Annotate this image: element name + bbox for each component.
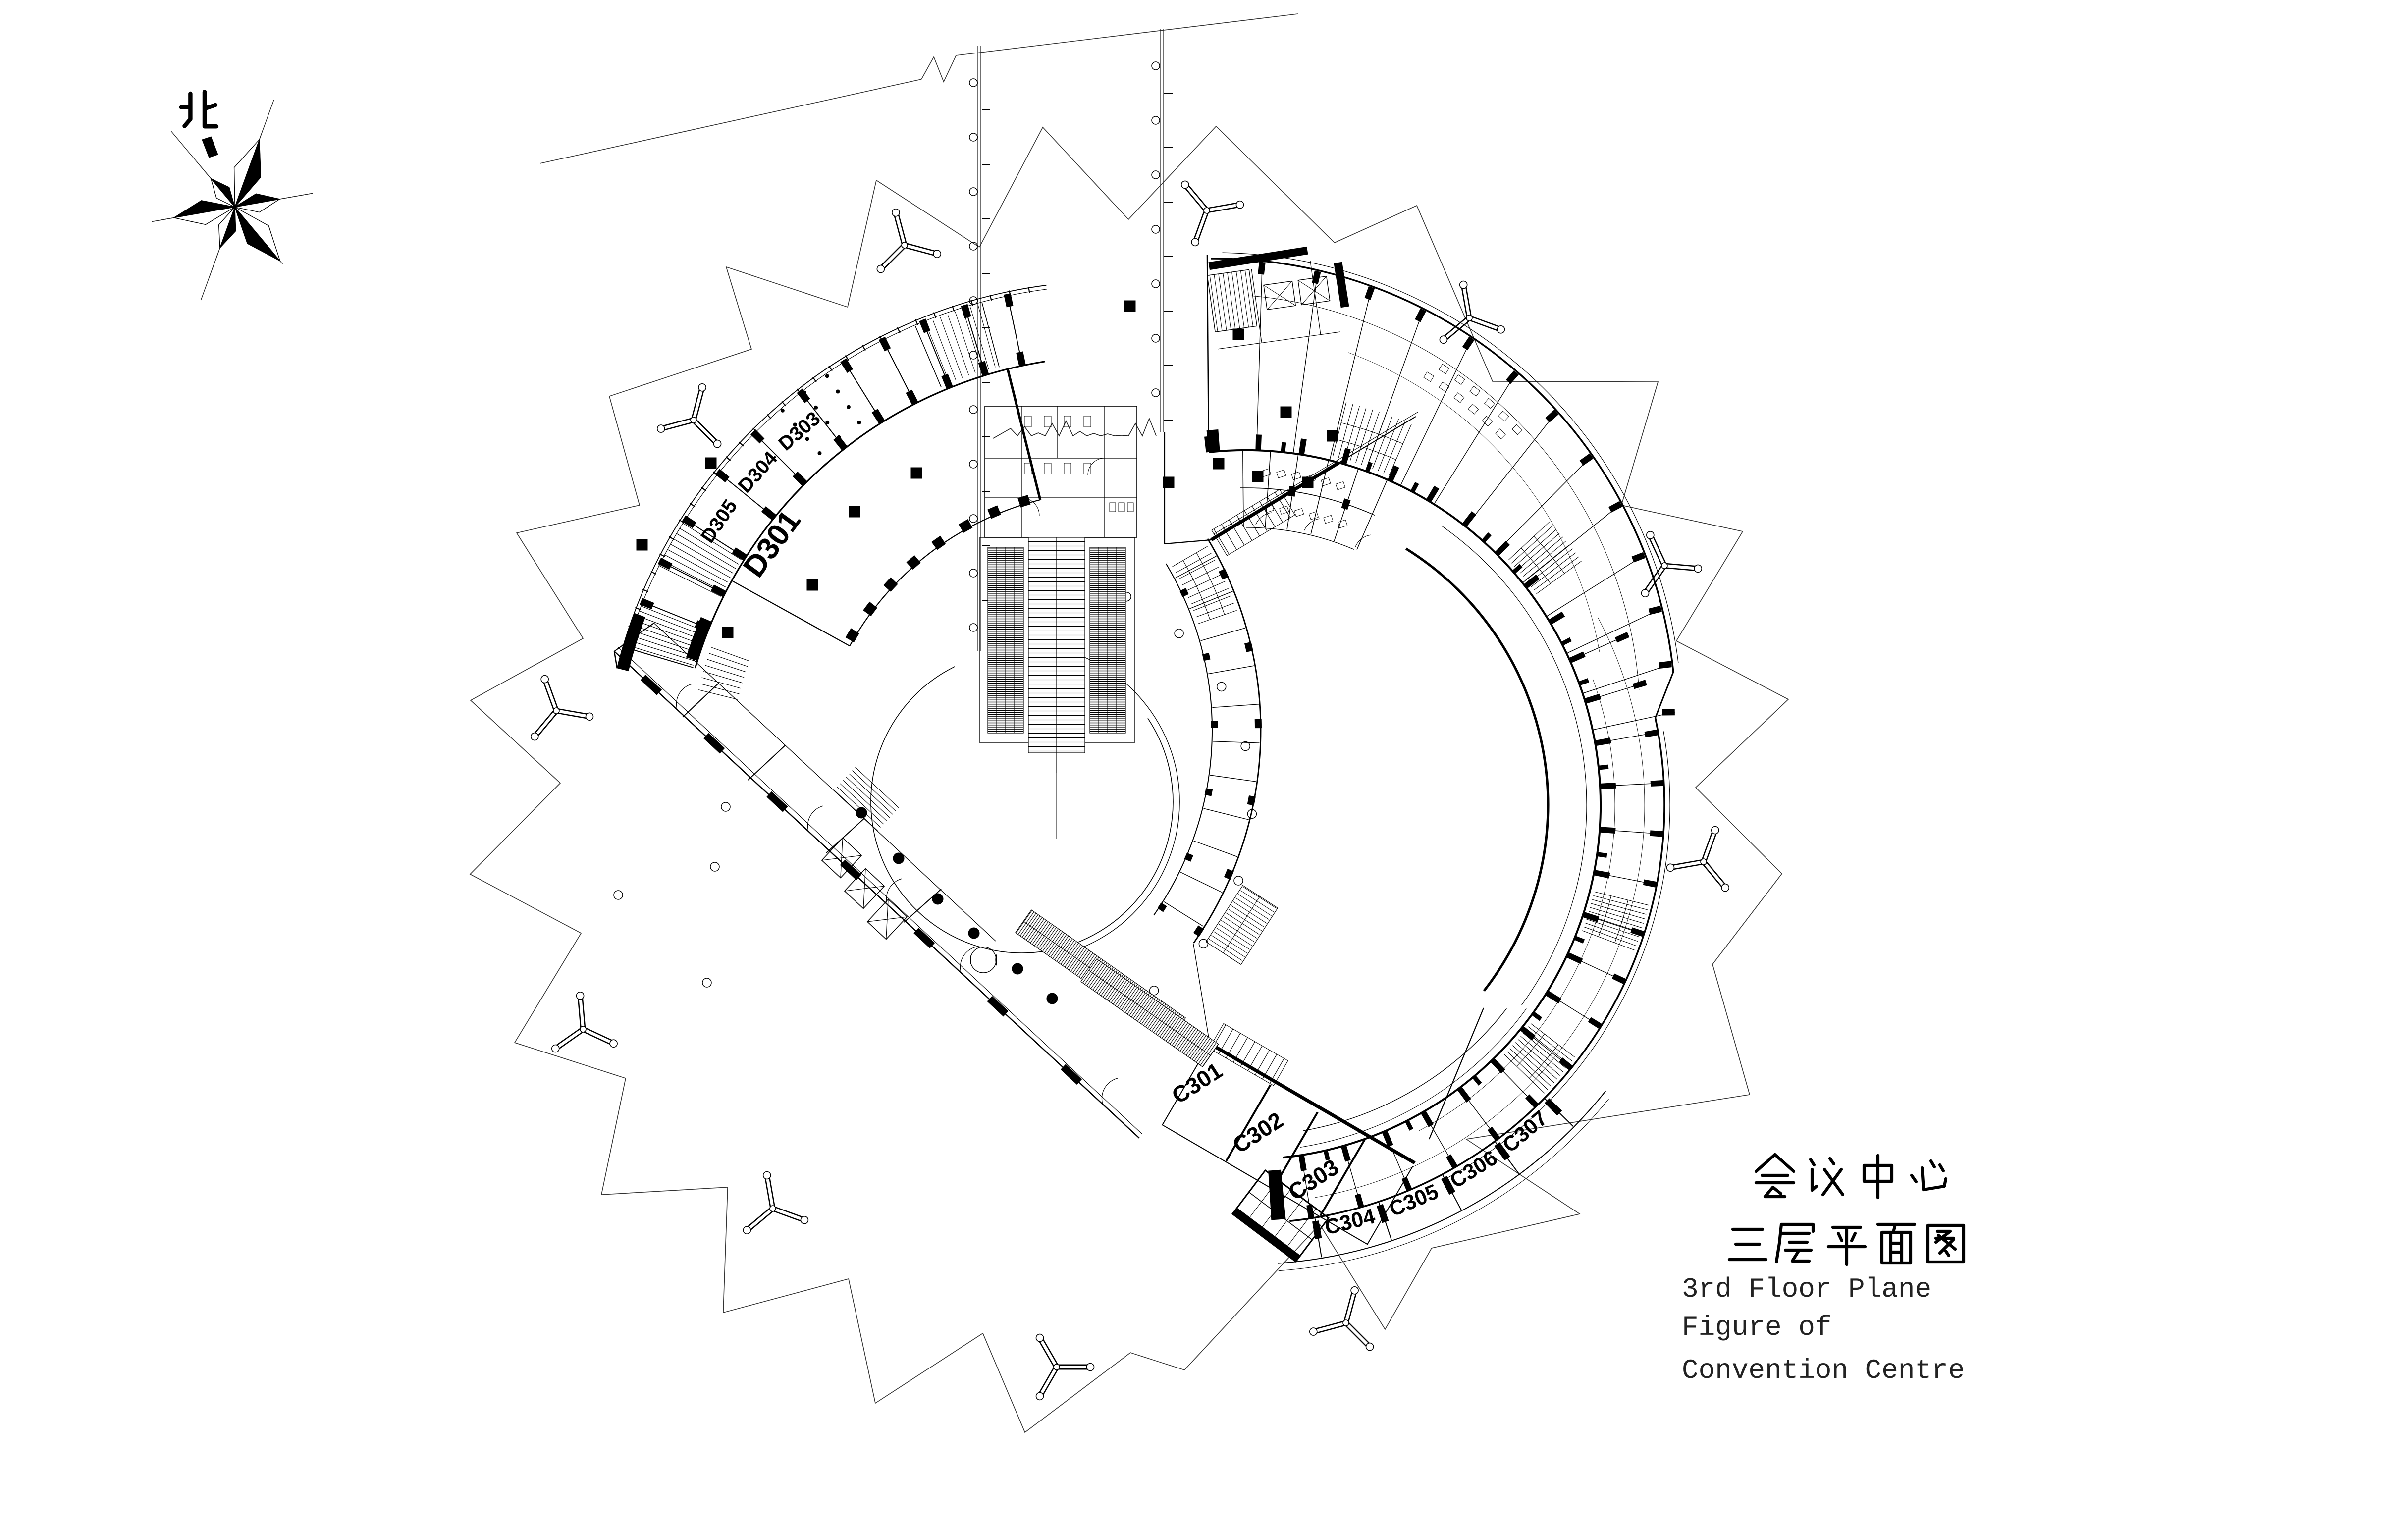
svg-text:3rd Floor Plane: 3rd Floor Plane	[1682, 1273, 1931, 1305]
svg-text:Convention Centre: Convention Centre	[1682, 1355, 1965, 1386]
svg-text:Figure of: Figure of	[1682, 1312, 1831, 1343]
